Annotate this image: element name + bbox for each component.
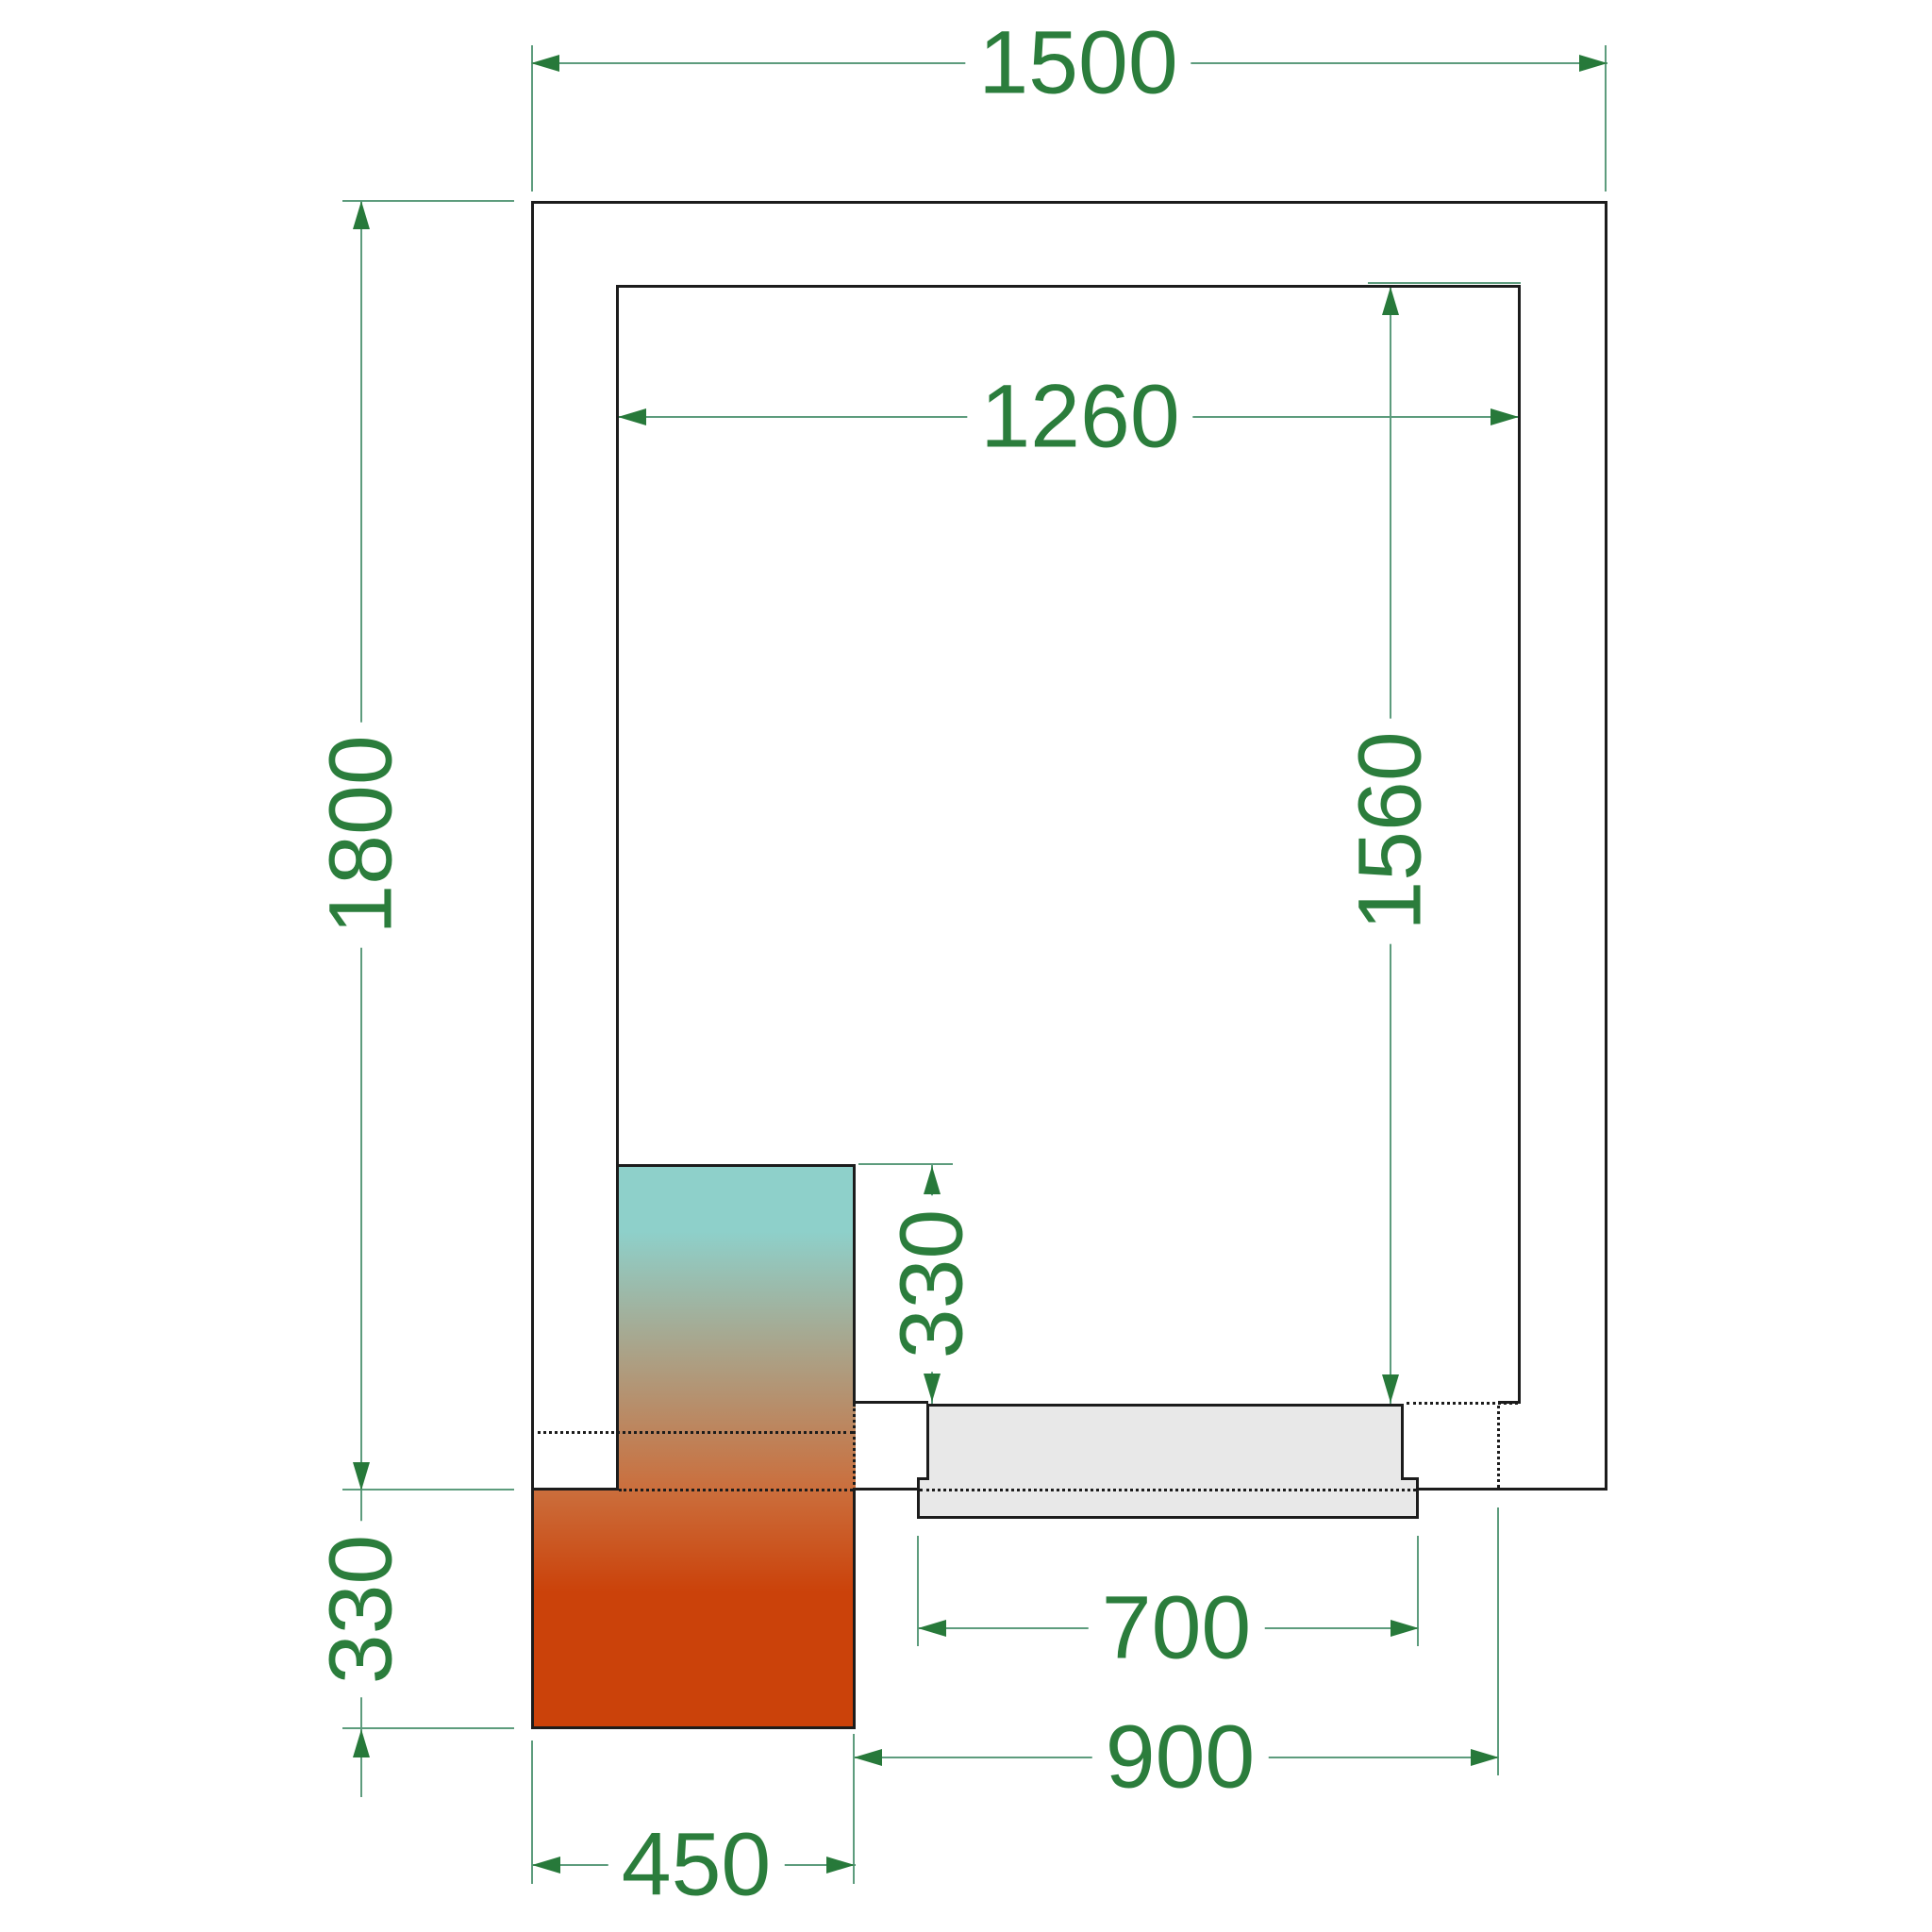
cooling-unit-indoor-part <box>616 1164 856 1491</box>
hidden-line-door-opening-top <box>1407 1402 1518 1405</box>
dim-450-arrow-left <box>532 1857 560 1874</box>
dim-450-label: 450 <box>608 1819 785 1912</box>
cooling-unit-outdoor-part <box>531 1491 856 1729</box>
dim-450-arrow-right <box>826 1857 855 1874</box>
hidden-line-wall-outer-face-unit <box>619 1489 853 1491</box>
dim-1800-arrow-bottom <box>353 1462 370 1491</box>
dim-330-inner-arrow-bottom <box>924 1374 941 1402</box>
dim-700-label: 700 <box>1089 1582 1265 1675</box>
dim-700-arrow-right <box>1391 1620 1419 1637</box>
dim-330-inner-ext <box>858 1163 953 1165</box>
dim-1560-arrow-top <box>1382 287 1399 315</box>
dim-700-arrow-left <box>918 1620 946 1637</box>
dim-900-arrow-right <box>1471 1749 1499 1766</box>
cooling-unit-right-edge <box>853 1164 856 1404</box>
dim-1800-arrow-top <box>353 201 370 229</box>
outer-wall-bottom-edge-mid <box>854 1488 918 1491</box>
dim-1260-label: 1260 <box>967 371 1192 464</box>
door-leaf <box>926 1404 1404 1479</box>
inner-wall-right-edge <box>1518 285 1521 1404</box>
outer-wall-right-edge <box>1605 201 1607 1491</box>
door-frame-lip <box>917 1479 1419 1519</box>
dim-1260-arrow-right <box>1491 408 1519 425</box>
dim-330-inner-arrow-top <box>924 1166 941 1194</box>
dim-1500-arrow-right <box>1579 55 1607 72</box>
cooling-unit-right-edge-hidden <box>853 1404 856 1491</box>
hidden-line-wall-outer-face-door <box>920 1489 1416 1491</box>
dim-1560-arrow-bottom <box>1382 1374 1399 1403</box>
dim-330-inner-label: 330 <box>886 1196 979 1373</box>
floor-plan-drawing: 1500 1800 1260 1560 330 <box>0 0 1932 1932</box>
inner-wall-top-edge <box>616 285 1521 288</box>
outer-wall-bottom-edge-right <box>1418 1488 1607 1491</box>
door-step-right <box>1401 1477 1419 1480</box>
dim-900-ext-right <box>1497 1507 1499 1775</box>
dim-1560-ext-top <box>1368 282 1521 284</box>
hidden-line-door-opening-jamb <box>1497 1406 1500 1488</box>
dim-330-outer-label: 330 <box>315 1522 408 1698</box>
dim-900-label: 900 <box>1092 1711 1269 1805</box>
inner-wall-left-edge <box>616 285 619 1164</box>
dim-1260-arrow-left <box>618 408 646 425</box>
inner-wall-bottom-edge-left <box>854 1401 928 1404</box>
dim-1500-arrow-left <box>531 55 559 72</box>
hidden-line-unit-upper <box>531 1431 853 1434</box>
outer-wall-left-edge <box>531 201 534 1491</box>
dim-900-arrow-left <box>854 1749 882 1766</box>
outer-wall-top-edge <box>531 201 1607 204</box>
dim-330-outer-arrow-bottom <box>353 1729 370 1757</box>
door-step-left <box>917 1477 929 1480</box>
dim-1500-label: 1500 <box>965 17 1191 110</box>
dim-1560-label: 1560 <box>1344 718 1438 943</box>
dim-1800-label: 1800 <box>315 722 408 947</box>
